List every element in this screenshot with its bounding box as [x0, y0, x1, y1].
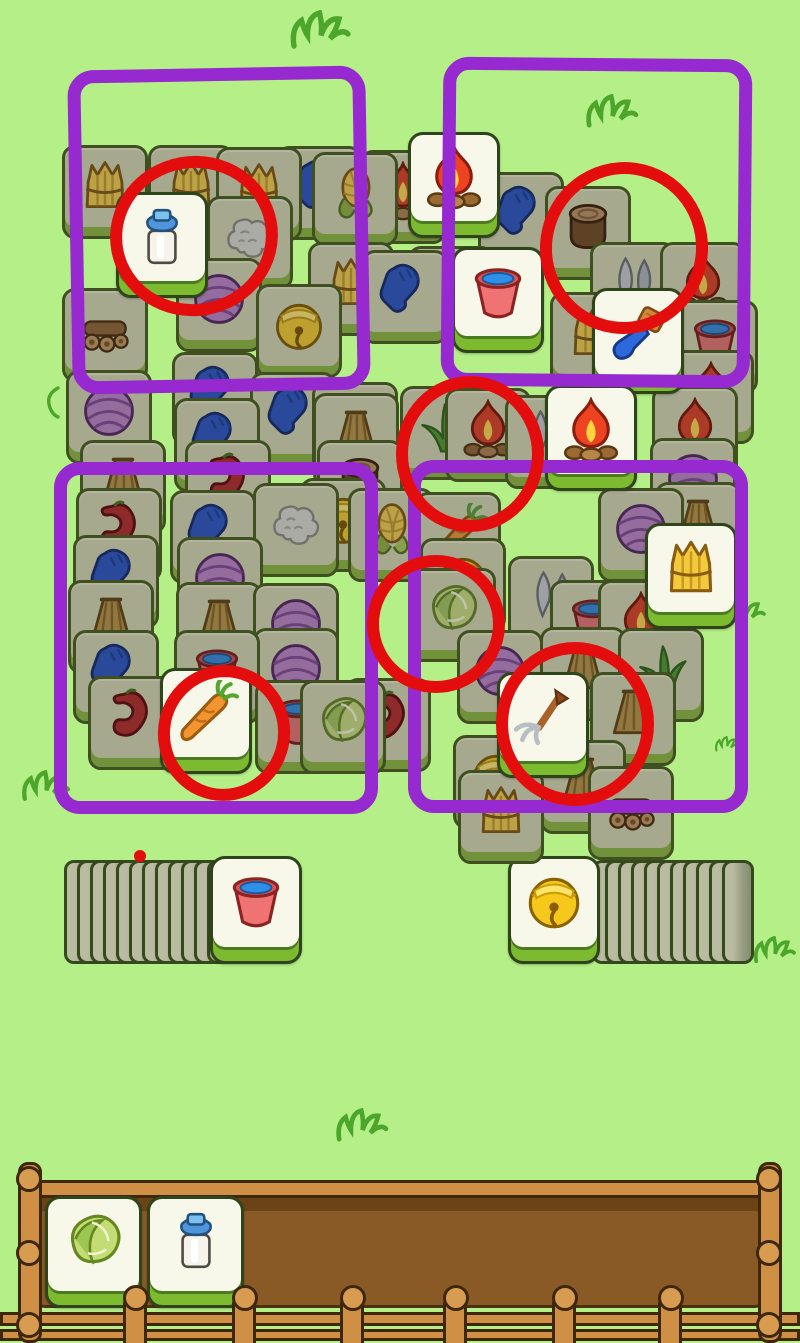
milk-icon: [129, 204, 195, 270]
wool-icon: [266, 494, 326, 554]
red-marker-dot: [134, 850, 146, 862]
tile-fire[interactable]: [545, 385, 637, 491]
brush-icon: [605, 300, 671, 366]
tile-wool: [253, 483, 339, 577]
tile-hay: [458, 770, 544, 864]
tile-brush[interactable]: [592, 288, 684, 394]
fence-post: [443, 1296, 467, 1343]
grass-tuft-icon: [334, 1108, 391, 1142]
grass-tuft-icon: [714, 736, 740, 752]
straw-icon: [603, 683, 663, 743]
tile-bucket[interactable]: [452, 247, 544, 353]
corn-icon: [325, 163, 385, 223]
hay-icon: [658, 535, 724, 601]
stack-rib-right: [722, 860, 754, 964]
fence-post-knob: [658, 1285, 684, 1311]
tray-post-knob: [756, 1240, 782, 1266]
tile-carrot[interactable]: [160, 668, 252, 774]
fence-post-knob: [232, 1285, 258, 1311]
glove-icon: [375, 261, 435, 321]
tile-milk: [147, 1196, 244, 1308]
bell-icon: [269, 295, 329, 355]
tray-post-knob: [16, 1166, 42, 1192]
tray-post-knob: [16, 1240, 42, 1266]
tile-bucket[interactable]: [210, 856, 302, 964]
fire-icon: [558, 397, 624, 463]
logs-icon: [601, 777, 661, 837]
cabbage-icon: [61, 1208, 127, 1274]
logs-icon: [75, 299, 135, 359]
pepper-icon: [101, 687, 161, 747]
bucket-icon: [223, 868, 289, 934]
game-stage: [0, 0, 800, 1343]
fire-icon: [421, 144, 487, 210]
tile-corn: [312, 152, 398, 246]
tray-post-knob: [16, 1312, 42, 1338]
tile-bell[interactable]: [508, 856, 600, 964]
tile-bell: [256, 284, 342, 378]
tile-glove: [362, 250, 448, 344]
tile-fire[interactable]: [408, 132, 500, 238]
tile-hay[interactable]: [645, 523, 737, 629]
tile-logs: [62, 288, 148, 382]
glove-icon: [491, 183, 551, 243]
bell-icon: [521, 868, 587, 934]
tile-cabbage: [300, 680, 386, 774]
grass-curl-icon: [44, 386, 62, 420]
fence-post-knob: [340, 1285, 366, 1311]
fence-post: [123, 1296, 147, 1343]
tray-top-rail: [26, 1180, 774, 1198]
tray-post-knob: [756, 1166, 782, 1192]
grass-tuft-icon: [288, 10, 354, 49]
fence-post: [658, 1296, 682, 1343]
tile-pitchfork[interactable]: [497, 672, 589, 778]
pitchfork-icon: [510, 684, 576, 750]
grass-tuft-icon: [584, 94, 641, 128]
tile-milk[interactable]: [116, 192, 208, 298]
bucket-icon: [465, 259, 531, 325]
fence-post-knob: [123, 1285, 149, 1311]
carrot-icon: [173, 680, 239, 746]
cabbage-icon: [313, 691, 373, 751]
grass-tuft-icon: [752, 936, 798, 963]
yarn-icon: [79, 381, 139, 441]
tile-logs: [588, 766, 674, 860]
fence-post: [340, 1296, 364, 1343]
milk-icon: [163, 1208, 229, 1274]
fence-post: [232, 1296, 256, 1343]
hay-icon: [471, 781, 531, 841]
corn-icon: [361, 499, 421, 559]
grass-tuft-icon: [20, 770, 73, 801]
fence-post-knob: [443, 1285, 469, 1311]
fence-post: [552, 1296, 576, 1343]
fence-post-knob: [552, 1285, 578, 1311]
tray-post-knob: [756, 1312, 782, 1338]
